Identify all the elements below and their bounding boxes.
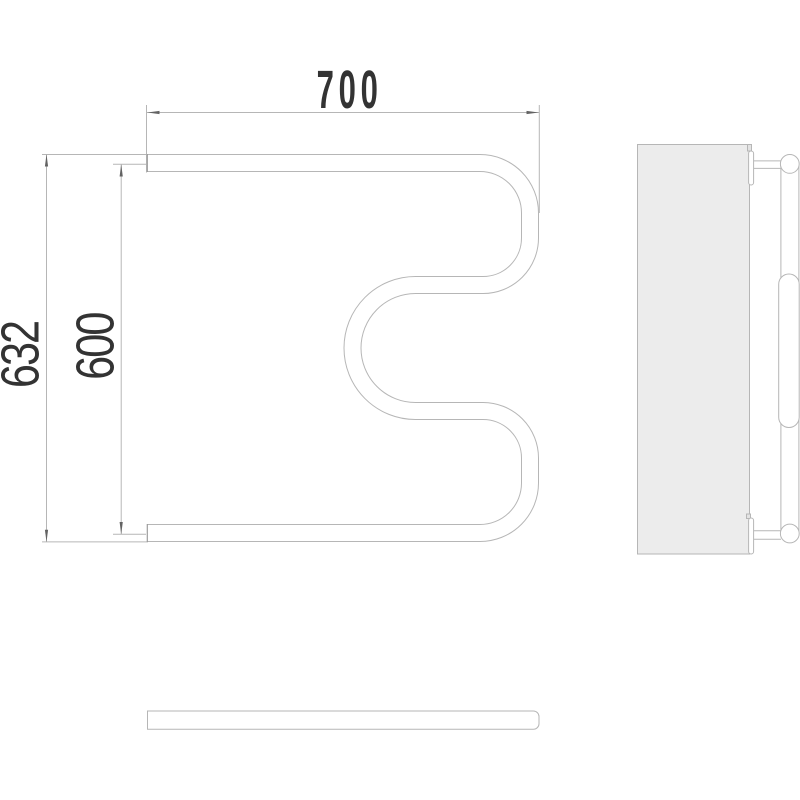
svg-text:700: 700 — [317, 60, 383, 120]
svg-text:600: 600 — [66, 313, 126, 380]
svg-text:632: 632 — [0, 322, 51, 388]
